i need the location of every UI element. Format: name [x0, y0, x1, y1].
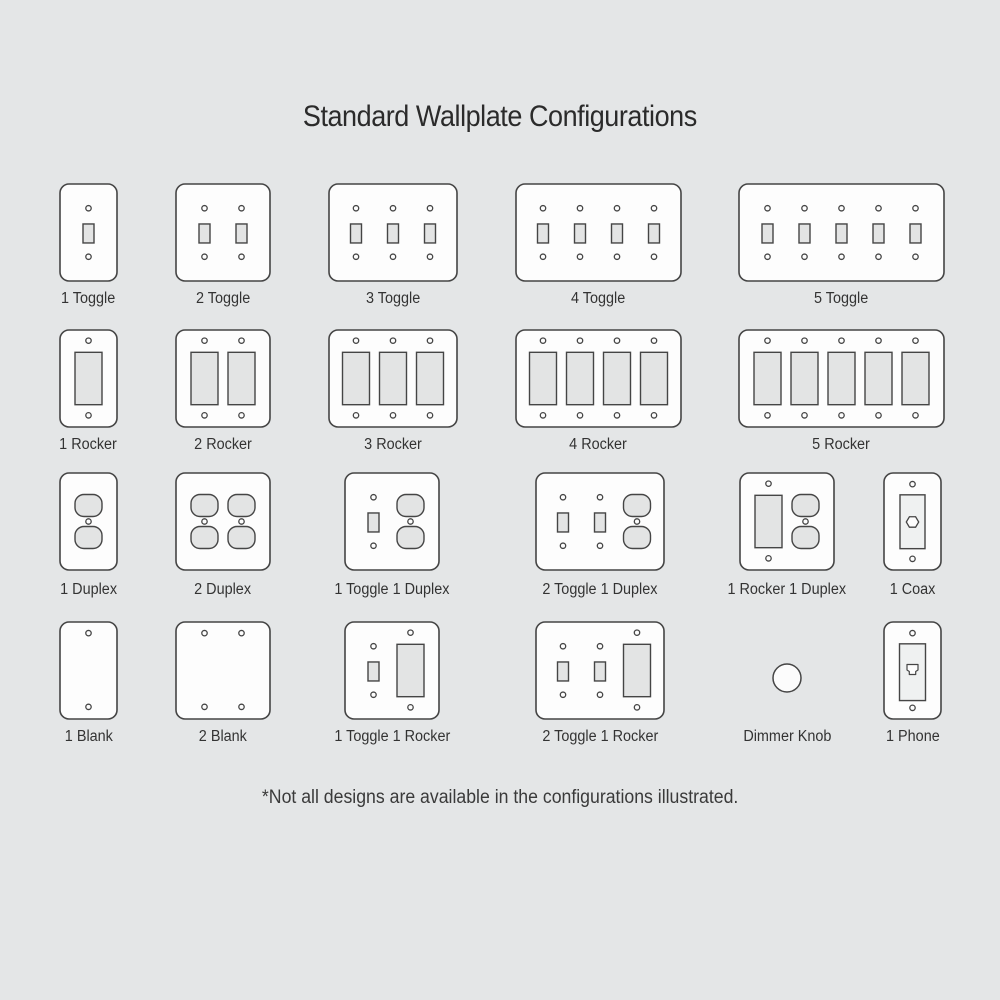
screw-icon [614, 338, 619, 343]
plate-label-text: 2 Rocker [194, 436, 252, 454]
wallplate-graphic [326, 327, 460, 430]
plate-label: 3 Toggle [318, 290, 468, 308]
wallplate-graphic [173, 181, 273, 284]
wallplate-3-rocker [326, 327, 460, 430]
page-title: Standard Wallplate Configurations [0, 100, 1000, 134]
screw-icon [766, 556, 771, 561]
screw-icon [86, 206, 91, 211]
screw-icon [371, 644, 376, 649]
wallplate-1-toggle-1-rocker [342, 619, 442, 722]
wallplate-face [176, 473, 270, 570]
rocker-switch-icon [828, 352, 855, 404]
wallplate-5-rocker [736, 327, 947, 430]
screw-icon [86, 704, 91, 709]
screw-icon [86, 338, 91, 343]
screw-icon [239, 206, 244, 211]
plate-label-text: 2 Duplex [195, 581, 252, 599]
plate-label: 5 Rocker [767, 436, 917, 454]
screw-icon [765, 206, 770, 211]
screw-icon [577, 206, 582, 211]
duplex-outlet-icon [624, 527, 651, 549]
screw-icon [634, 705, 639, 710]
screw-icon [910, 705, 915, 710]
screw-icon [560, 495, 565, 500]
plate-label-text: 2 Toggle [196, 290, 250, 308]
toggle-switch-icon [351, 224, 362, 243]
screw-icon [634, 630, 639, 635]
rocker-switch-icon [755, 495, 782, 547]
plate-label-text: 3 Toggle [366, 290, 420, 308]
screw-icon [651, 338, 656, 343]
wallplate-1-toggle-1-duplex [342, 470, 442, 573]
screw-icon [839, 413, 844, 418]
wallplate-graphic [342, 619, 442, 722]
toggle-switch-icon [368, 662, 379, 681]
screw-icon [839, 338, 844, 343]
plate-label-text: Dimmer Knob [743, 728, 831, 746]
plate-label: 1 Duplex [14, 581, 164, 599]
screw-icon [597, 644, 602, 649]
screw-icon [202, 704, 207, 709]
screw-icon [239, 519, 244, 524]
wallplate-1-duplex [57, 470, 120, 573]
dimmer-knob-icon [773, 664, 801, 692]
duplex-outlet-icon [75, 494, 102, 516]
screw-icon [876, 254, 881, 259]
screw-icon [427, 338, 432, 343]
screw-icon [597, 543, 602, 548]
rocker-switch-icon [417, 352, 444, 404]
screw-icon [202, 519, 207, 524]
rocker-switch-icon [380, 352, 407, 404]
wallplate-graphic [533, 619, 667, 722]
screw-icon [802, 413, 807, 418]
plate-label: 2 Blank [148, 728, 298, 746]
duplex-outlet-icon [228, 494, 255, 516]
wallplate-5-toggle [736, 181, 947, 284]
toggle-switch-icon [762, 224, 773, 243]
wallplate-2-duplex [173, 470, 273, 573]
plate-label: 1 Rocker [14, 436, 164, 454]
wallplate-graphic [513, 327, 684, 430]
screw-icon [86, 630, 91, 635]
wallplate-graphic [736, 181, 947, 284]
screw-icon [353, 338, 358, 343]
screw-icon [202, 338, 207, 343]
screw-icon [913, 338, 918, 343]
plate-label: 1 Toggle [14, 290, 164, 308]
screw-icon [560, 543, 565, 548]
screw-icon [86, 413, 91, 418]
wallplate-graphic [737, 470, 837, 573]
footnote: *Not all designs are available in the co… [0, 787, 1000, 809]
toggle-switch-icon [538, 224, 549, 243]
duplex-outlet-icon [397, 527, 424, 549]
screw-icon [239, 254, 244, 259]
screw-icon [390, 254, 395, 259]
screw-icon [371, 543, 376, 548]
screw-icon [390, 206, 395, 211]
screw-icon [427, 413, 432, 418]
wallplate-graphic [881, 619, 944, 722]
screw-icon [651, 206, 656, 211]
wallplate-graphic [173, 470, 273, 573]
wallplate-face [176, 184, 270, 281]
duplex-outlet-icon [624, 494, 651, 516]
duplex-outlet-icon [75, 527, 102, 549]
plate-label: 2 Toggle 1 Rocker [525, 728, 675, 746]
footnote-text: *Not all designs are available in the co… [262, 787, 738, 809]
plate-label: 3 Rocker [318, 436, 468, 454]
rocker-switch-icon [530, 352, 557, 404]
duplex-outlet-icon [792, 494, 819, 516]
wallplate-4-toggle [513, 181, 684, 284]
toggle-switch-icon [649, 224, 660, 243]
wallplate-graphic [57, 327, 120, 430]
screw-icon [876, 206, 881, 211]
plate-label-text: 2 Toggle 1 Rocker [542, 728, 658, 746]
screw-icon [239, 630, 244, 635]
plate-label-text: 1 Rocker 1 Duplex [728, 581, 847, 599]
toggle-switch-icon [595, 513, 606, 532]
screw-icon [913, 206, 918, 211]
screw-icon [876, 413, 881, 418]
screw-icon [910, 630, 915, 635]
wallplate-face [345, 473, 439, 570]
rocker-switch-icon [604, 352, 631, 404]
screw-icon [371, 692, 376, 697]
plate-label: 2 Rocker [148, 436, 298, 454]
wallplate-graphic [881, 470, 944, 573]
rocker-switch-icon [191, 352, 218, 404]
toggle-switch-icon [388, 224, 399, 243]
plate-label-text: 2 Blank [199, 728, 247, 746]
screw-icon [353, 413, 358, 418]
screw-icon [239, 413, 244, 418]
wallplate-graphic [736, 327, 947, 430]
rocker-switch-icon [641, 352, 668, 404]
screw-icon [239, 338, 244, 343]
screw-icon [353, 206, 358, 211]
plate-label-text: 4 Toggle [571, 290, 625, 308]
toggle-switch-icon [799, 224, 810, 243]
screw-icon [353, 254, 358, 259]
plate-label-text: 5 Toggle [814, 290, 868, 308]
plate-label-text: 5 Rocker [813, 436, 871, 454]
wallplate-1-blank [57, 619, 120, 722]
toggle-switch-icon [83, 224, 94, 243]
wallplate-2-toggle-1-rocker [533, 619, 667, 722]
rocker-switch-icon [791, 352, 818, 404]
plate-label-text: 1 Rocker [60, 436, 118, 454]
screw-icon [427, 254, 432, 259]
rocker-switch-icon [75, 352, 102, 404]
screw-icon [614, 254, 619, 259]
wallplate-graphic [173, 619, 273, 722]
wallplate-graphic [57, 181, 120, 284]
wallplate-face [176, 330, 270, 427]
plate-label: 4 Rocker [524, 436, 674, 454]
screw-icon [371, 495, 376, 500]
screw-icon [802, 206, 807, 211]
screw-icon [390, 413, 395, 418]
wallplate-face [345, 622, 439, 719]
plate-label-text: 1 Toggle [61, 290, 115, 308]
screw-icon [766, 481, 771, 486]
screw-icon [540, 338, 545, 343]
screw-icon [408, 519, 413, 524]
wallplate-1-rocker-1-duplex [737, 470, 837, 573]
screw-icon [765, 338, 770, 343]
screw-icon [765, 413, 770, 418]
wallplate-1-coax [881, 470, 944, 573]
plate-label: 1 Phone [838, 728, 988, 746]
wallplate-2-blank [173, 619, 273, 722]
screw-icon [202, 254, 207, 259]
screw-icon [86, 254, 91, 259]
plate-label: 5 Toggle [767, 290, 917, 308]
screw-icon [577, 254, 582, 259]
coax-connector-icon [906, 517, 918, 527]
wallplate-graphic [57, 619, 120, 722]
screw-icon [540, 206, 545, 211]
toggle-switch-icon [368, 513, 379, 532]
plate-label-text: 4 Rocker [570, 436, 628, 454]
screw-icon [614, 413, 619, 418]
wallplate-graphic [513, 181, 684, 284]
toggle-switch-icon [595, 662, 606, 681]
rocker-switch-icon [397, 644, 424, 696]
screw-icon [765, 254, 770, 259]
plate-label: 1 Toggle 1 Rocker [317, 728, 467, 746]
rocker-switch-icon [343, 352, 370, 404]
wallplate-3-toggle [326, 181, 460, 284]
plate-label-text: 1 Toggle 1 Duplex [334, 581, 449, 599]
toggle-switch-icon [425, 224, 436, 243]
rocker-switch-icon [754, 352, 781, 404]
toggle-switch-icon [199, 224, 210, 243]
screw-icon [560, 692, 565, 697]
toggle-switch-icon [873, 224, 884, 243]
screw-icon [202, 630, 207, 635]
wallplate-2-toggle [173, 181, 273, 284]
duplex-outlet-icon [191, 527, 218, 549]
screw-icon [390, 338, 395, 343]
duplex-outlet-icon [792, 527, 819, 549]
toggle-switch-icon [836, 224, 847, 243]
wallplate-2-rocker [173, 327, 273, 430]
screw-icon [577, 338, 582, 343]
plate-label: 2 Toggle 1 Duplex [525, 581, 675, 599]
wallplate-graphic [57, 470, 120, 573]
plate-label-text: 3 Rocker [364, 436, 422, 454]
screw-icon [202, 413, 207, 418]
plate-label: 1 Coax [838, 581, 988, 599]
screw-icon [651, 254, 656, 259]
wallplate-face [740, 473, 834, 570]
dimmer-knob-graphic [765, 656, 809, 700]
screw-icon [876, 338, 881, 343]
screw-icon [913, 413, 918, 418]
screw-icon [408, 705, 413, 710]
wallplate-1-phone [881, 619, 944, 722]
screw-icon [597, 692, 602, 697]
wallplate-1-rocker [57, 327, 120, 430]
rocker-switch-icon [228, 352, 255, 404]
plate-label: 2 Duplex [148, 581, 298, 599]
wallplate-1-toggle [57, 181, 120, 284]
duplex-outlet-icon [191, 494, 218, 516]
plate-label-text: 1 Duplex [60, 581, 117, 599]
wallplate-graphic [342, 470, 442, 573]
screw-icon [910, 556, 915, 561]
toggle-switch-icon [558, 513, 569, 532]
rocker-switch-icon [865, 352, 892, 404]
toggle-switch-icon [612, 224, 623, 243]
dimmer-knob [765, 656, 809, 700]
screw-icon [839, 206, 844, 211]
wallplate-graphic [326, 181, 460, 284]
toggle-switch-icon [236, 224, 247, 243]
wallplate-graphic [533, 470, 667, 573]
screw-icon [634, 519, 639, 524]
screw-icon [86, 519, 91, 524]
wallplate-2-toggle-1-duplex [533, 470, 667, 573]
plate-label-text: 1 Phone [886, 728, 940, 746]
wallplate-4-rocker [513, 327, 684, 430]
screw-icon [577, 413, 582, 418]
screw-icon [408, 630, 413, 635]
plate-label-text: 1 Blank [64, 728, 112, 746]
duplex-outlet-icon [397, 494, 424, 516]
plate-label: 2 Toggle [148, 290, 298, 308]
screw-icon [239, 704, 244, 709]
toggle-switch-icon [910, 224, 921, 243]
plate-label: 1 Toggle 1 Duplex [317, 581, 467, 599]
duplex-outlet-icon [228, 527, 255, 549]
screw-icon [427, 206, 432, 211]
plate-label: 1 Blank [14, 728, 164, 746]
screw-icon [803, 519, 808, 524]
screw-icon [560, 644, 565, 649]
wallplate-configurations-diagram: Standard Wallplate Configurations *Not a… [0, 0, 1000, 1000]
toggle-switch-icon [575, 224, 586, 243]
screw-icon [614, 206, 619, 211]
rocker-switch-icon [902, 352, 929, 404]
plate-label: 4 Toggle [524, 290, 674, 308]
screw-icon [540, 413, 545, 418]
rocker-switch-icon [567, 352, 594, 404]
screw-icon [802, 338, 807, 343]
plate-label-text: 1 Coax [890, 581, 936, 599]
toggle-switch-icon [558, 662, 569, 681]
screw-icon [540, 254, 545, 259]
plate-label-text: 1 Toggle 1 Rocker [334, 728, 450, 746]
rocker-switch-icon [624, 644, 651, 696]
wallplate-graphic [173, 327, 273, 430]
screw-icon [651, 413, 656, 418]
wallplate-face [176, 622, 270, 719]
screw-icon [839, 254, 844, 259]
screw-icon [597, 495, 602, 500]
plate-label-text: 2 Toggle 1 Duplex [542, 581, 657, 599]
page-title-text: Standard Wallplate Configurations [303, 100, 697, 134]
screw-icon [910, 481, 915, 486]
screw-icon [913, 254, 918, 259]
screw-icon [202, 206, 207, 211]
screw-icon [802, 254, 807, 259]
